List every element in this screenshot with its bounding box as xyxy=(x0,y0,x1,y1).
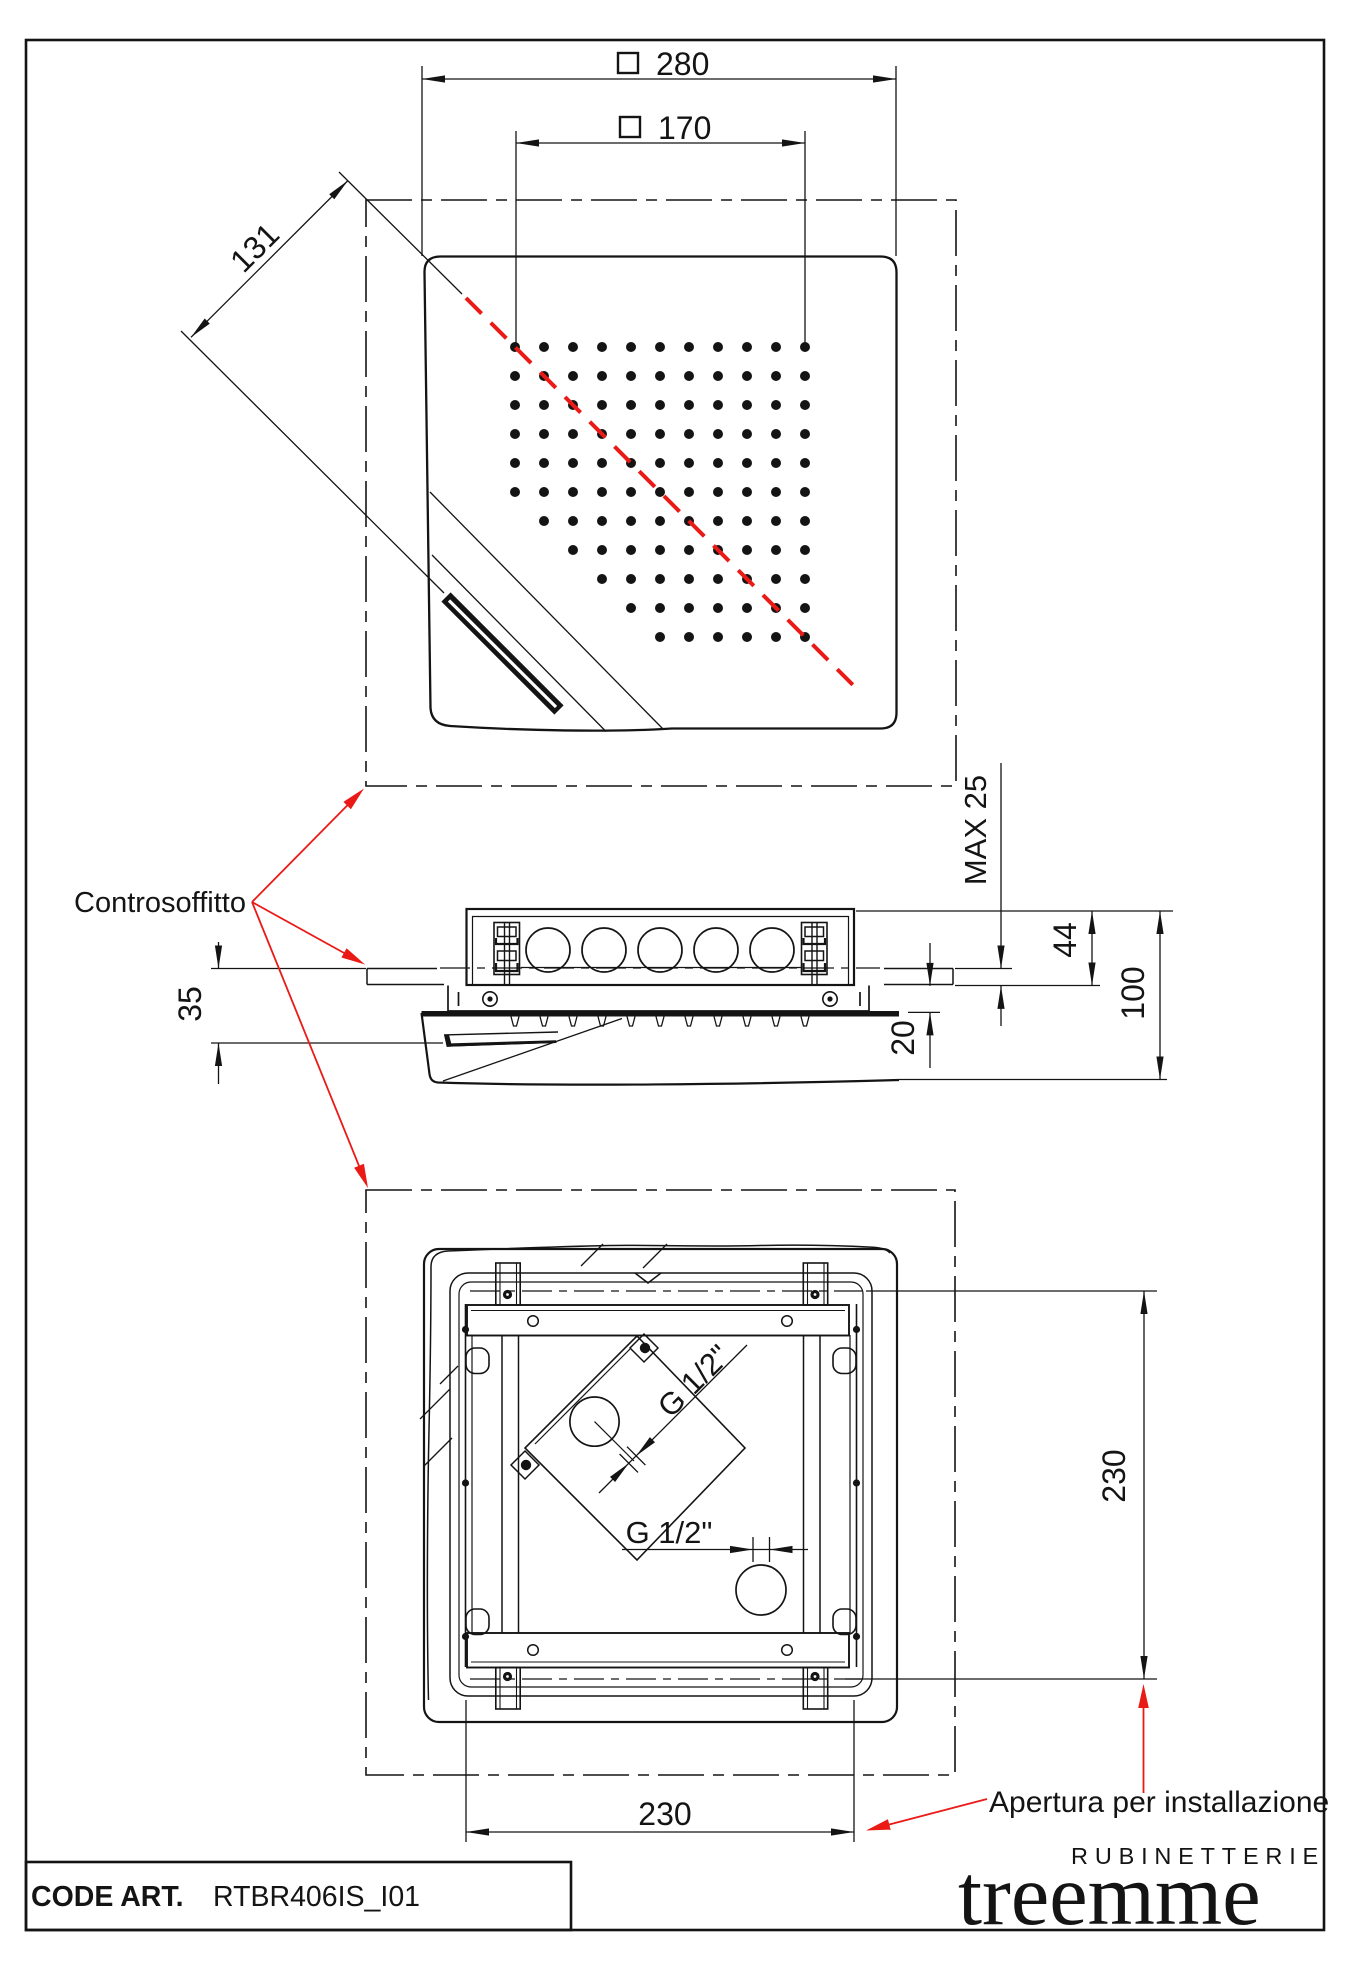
svg-text:230: 230 xyxy=(638,1796,691,1832)
svg-text:35: 35 xyxy=(172,986,208,1022)
svg-text:20: 20 xyxy=(885,1020,921,1056)
svg-text:230: 230 xyxy=(1096,1449,1132,1502)
svg-text:280: 280 xyxy=(656,46,709,82)
svg-text:treemme: treemme xyxy=(958,1847,1261,1943)
svg-text:170: 170 xyxy=(658,110,711,146)
svg-text:100: 100 xyxy=(1115,966,1151,1019)
svg-text:CODE ART.: CODE ART. xyxy=(31,1881,184,1913)
svg-text:G 1/2": G 1/2" xyxy=(626,1515,713,1550)
svg-text:44: 44 xyxy=(1047,922,1083,958)
svg-text:Controsoffitto: Controsoffitto xyxy=(74,887,246,919)
svg-text:MAX 25: MAX 25 xyxy=(958,775,993,885)
svg-text:RTBR406IS_I01: RTBR406IS_I01 xyxy=(213,1881,420,1913)
svg-text:Apertura per installazione: Apertura per installazione xyxy=(989,1786,1329,1819)
